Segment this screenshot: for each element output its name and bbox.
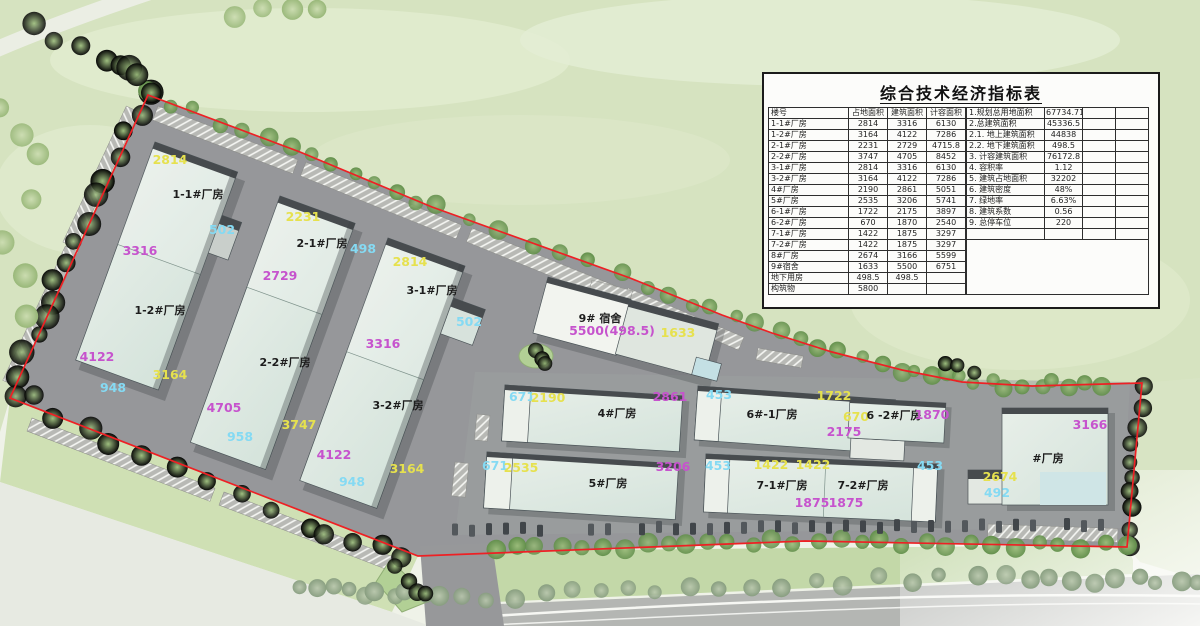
cell-empty xyxy=(1045,229,1083,240)
building-label-2-1: 2-1#厂房 xyxy=(296,236,347,250)
tree xyxy=(746,537,761,552)
tree xyxy=(829,342,846,359)
tree xyxy=(418,586,434,602)
tree xyxy=(27,143,49,165)
parked-car xyxy=(775,520,781,532)
tree xyxy=(478,593,494,609)
cell-value: 44838 xyxy=(1045,130,1083,141)
parked-car xyxy=(656,521,662,533)
tree xyxy=(1071,539,1090,558)
table-row: 2-1#厂房 2231 2729 4715.8 xyxy=(769,141,966,152)
parked-car xyxy=(724,522,730,534)
cell-building: 2-2#厂房 xyxy=(769,152,849,163)
table-row: 4. 容积率 1.12 xyxy=(967,163,1149,174)
building-label-1-2: 1-2#厂房 xyxy=(134,303,185,317)
tree xyxy=(661,536,677,552)
cell-empty xyxy=(1083,174,1116,185)
tree xyxy=(809,573,824,588)
tree xyxy=(141,83,162,104)
tree xyxy=(621,580,636,595)
parked-car xyxy=(741,522,747,534)
parked-car xyxy=(503,523,509,535)
parked-car xyxy=(826,522,832,534)
tree xyxy=(538,584,555,601)
tree xyxy=(342,582,357,597)
tree xyxy=(1148,576,1162,590)
cell-empty xyxy=(1116,185,1149,196)
tree xyxy=(1121,482,1139,500)
cell-empty xyxy=(1116,152,1149,163)
dim-annex: 453 xyxy=(705,458,731,473)
tree xyxy=(762,530,781,549)
parked-car xyxy=(588,524,594,536)
col-header: 建筑面积 xyxy=(888,108,927,119)
tree xyxy=(950,358,964,372)
dim-built: 2861 xyxy=(653,389,688,404)
tree xyxy=(1134,399,1152,417)
cell-footprint: 2535 xyxy=(849,196,888,207)
table-row-notes xyxy=(967,240,1149,295)
cell-plot-area: 5741 xyxy=(927,196,966,207)
cell-plot-area: 7286 xyxy=(927,174,966,185)
tree xyxy=(648,585,662,599)
parked-car xyxy=(792,522,798,534)
tree xyxy=(719,534,735,550)
tree xyxy=(967,366,981,380)
parked-car xyxy=(605,523,611,535)
tree xyxy=(1033,535,1047,549)
tree xyxy=(1105,569,1125,589)
tree xyxy=(125,63,148,86)
cell-value: 0.56 xyxy=(1045,207,1083,218)
cell-empty xyxy=(1116,196,1149,207)
parked-car xyxy=(911,521,917,533)
tree xyxy=(21,189,41,209)
parked-car xyxy=(452,524,458,536)
tree xyxy=(224,6,246,28)
dim-annex: 492 xyxy=(984,485,1010,500)
tree xyxy=(22,12,45,35)
table-row: 6-2#厂房 670 1870 2540 xyxy=(769,218,966,229)
tree xyxy=(1021,570,1040,589)
parked-car xyxy=(520,522,526,534)
parked-car xyxy=(877,522,883,534)
table-row: 5#厂房 2535 3206 5741 xyxy=(769,196,966,207)
cell-building: 9#宿舍 xyxy=(769,262,849,273)
tree xyxy=(365,582,384,601)
cell-empty xyxy=(1116,141,1149,152)
parked-car xyxy=(1064,518,1070,530)
dim-footprint: 2535 xyxy=(504,460,539,475)
tree xyxy=(13,263,38,288)
cell-plot-area: 6130 xyxy=(927,119,966,130)
building-label-3-1: 3-1#厂房 xyxy=(406,283,457,297)
cell-footprint: 3164 xyxy=(849,174,888,185)
tree xyxy=(326,578,342,594)
table-row: 2.2. 地下建筑面积 498.5 xyxy=(967,141,1149,152)
table-row: 1.规划总用地面积 67734.71 xyxy=(967,108,1149,119)
cell-indicator: 9. 总停车位 xyxy=(967,218,1045,229)
table-row: 3. 计容建筑面积 76172.8 xyxy=(967,152,1149,163)
cell-built-area: 2729 xyxy=(888,141,927,152)
parked-car xyxy=(1013,519,1019,531)
cell-built-area: 1870 xyxy=(888,218,927,229)
dim-built: 2175 xyxy=(827,424,862,439)
cell-indicator: 7. 绿地率 xyxy=(967,196,1045,207)
building-label-7-2: 7-2#厂房 xyxy=(837,478,888,492)
dim-built: 4705 xyxy=(207,400,242,415)
tree xyxy=(1092,377,1111,396)
cell-building: 1-1#厂房 xyxy=(769,119,849,130)
dim-footprint: 3164 xyxy=(153,367,188,382)
dim-footprint: 670 xyxy=(843,409,869,424)
cell-value: 67734.71 xyxy=(1045,108,1083,119)
parked-car xyxy=(758,520,764,532)
cell-footprint: 2674 xyxy=(849,251,888,262)
cell-building: 3-1#厂房 xyxy=(769,163,849,174)
parked-car xyxy=(860,520,866,532)
table-row: 构筑物 5800 xyxy=(769,284,966,295)
tree xyxy=(699,533,715,549)
parked-car xyxy=(1098,519,1104,531)
cell-footprint: 498.5 xyxy=(849,273,888,284)
table-grid: 楼号 占地面积 建筑面积 计容面积 1-1#厂房 2814 3316 6130 xyxy=(768,107,1154,295)
tree xyxy=(1132,569,1148,585)
cell-empty xyxy=(967,229,1045,240)
tree xyxy=(711,581,727,597)
table-row: 5. 建筑占地面积 32202 xyxy=(967,174,1149,185)
cell-value: 1.12 xyxy=(1045,163,1083,174)
cell-building: 8#厂房 xyxy=(769,251,849,262)
tree xyxy=(57,254,76,273)
cell-plot-area: 3297 xyxy=(927,240,966,251)
parked-car xyxy=(486,523,492,535)
parked-car xyxy=(843,520,849,532)
cell-value: 498.5 xyxy=(1045,141,1083,152)
tree xyxy=(919,533,935,549)
cell-indicator: 6. 建筑密度 xyxy=(967,185,1045,196)
cell-plot-area: 8452 xyxy=(927,152,966,163)
dim-footprint: 3747 xyxy=(282,417,317,432)
tree xyxy=(453,588,470,605)
tree xyxy=(964,535,979,550)
dim-built: 4122 xyxy=(80,349,115,364)
cell-empty xyxy=(1083,196,1116,207)
cell-built-area: 3316 xyxy=(888,119,927,130)
table-row: 8#厂房 2674 3166 5599 xyxy=(769,251,966,262)
cell-empty xyxy=(1116,229,1149,240)
cell-building: 2-1#厂房 xyxy=(769,141,849,152)
cell-empty xyxy=(1083,130,1116,141)
tree xyxy=(6,365,29,388)
tree xyxy=(314,524,334,544)
cell-built-area: 4122 xyxy=(888,174,927,185)
cell-empty xyxy=(1083,163,1116,174)
parked-car xyxy=(928,520,934,532)
table-row: 9. 总停车位 220 xyxy=(967,218,1149,229)
tree xyxy=(1077,375,1092,390)
building-label-5: 5#厂房 xyxy=(589,476,628,490)
parked-car xyxy=(639,523,645,535)
cell-building: 6-1#厂房 xyxy=(769,207,849,218)
cell-footprint: 1422 xyxy=(849,240,888,251)
cell-built-area: 2861 xyxy=(888,185,927,196)
table-row: 1-2#厂房 3164 4122 7286 xyxy=(769,130,966,141)
cell-built-area: 5500 xyxy=(888,262,927,273)
cell-built-area: 3206 xyxy=(888,196,927,207)
parked-car xyxy=(996,521,1002,533)
table-row: 2.总建筑面积 45336.5 xyxy=(967,119,1149,130)
tree xyxy=(387,558,402,573)
parked-car xyxy=(979,519,985,531)
parked-car xyxy=(690,523,696,535)
dim-footprint: 2814 xyxy=(393,254,428,269)
dim-footprint: 2814 xyxy=(153,152,188,167)
dim-built: 3166 xyxy=(1073,417,1108,432)
building-label-4: 4#厂房 xyxy=(598,406,637,420)
table-row: 1-1#厂房 2814 3316 6130 xyxy=(769,119,966,130)
cell-indicator: 2.2. 地下建筑面积 xyxy=(967,141,1045,152)
parking-strip xyxy=(474,414,490,441)
cell-plot-area: 3297 xyxy=(927,229,966,240)
dim-annex: 498 xyxy=(350,241,376,256)
building-label-8: #厂房 xyxy=(1032,451,1063,465)
cell-plot-area: 4715.8 xyxy=(927,141,966,152)
tree xyxy=(505,589,525,609)
dim-built: 3316 xyxy=(366,336,401,351)
tree xyxy=(45,32,63,50)
tree xyxy=(263,502,280,519)
cell-built-area: 2175 xyxy=(888,207,927,218)
dim-annex: 958 xyxy=(227,429,253,444)
tree xyxy=(1015,379,1030,394)
parked-car xyxy=(673,523,679,535)
dim-annex: 453 xyxy=(706,387,732,402)
tree xyxy=(968,566,988,586)
cell-footprint: 2814 xyxy=(849,119,888,130)
dim-annex: 948 xyxy=(339,474,365,489)
tree xyxy=(1135,377,1153,395)
site-plan-screenshot: { "table": { "title": "综合技术经济指标表", "left… xyxy=(0,0,1200,626)
table-row: 6-1#厂房 1722 2175 3897 xyxy=(769,207,966,218)
tree xyxy=(676,534,696,554)
dim-footprint: 1633 xyxy=(661,325,696,340)
cell-plot-area: 6130 xyxy=(927,163,966,174)
tree xyxy=(1060,379,1078,397)
tree xyxy=(594,538,612,556)
col-header: 占地面积 xyxy=(849,108,888,119)
building-label-7-1: 7-1#厂房 xyxy=(756,478,807,492)
cell-empty xyxy=(1083,119,1116,130)
cell-building: 7-2#厂房 xyxy=(769,240,849,251)
table-row: 3-1#厂房 2814 3316 6130 xyxy=(769,163,966,174)
tree xyxy=(743,579,760,596)
cell-footprint: 1722 xyxy=(849,207,888,218)
dim-annex: 502 xyxy=(456,314,482,329)
cell-built-area: 3316 xyxy=(888,163,927,174)
dim-footprint: 1722 xyxy=(817,388,852,403)
parked-car xyxy=(894,519,900,531)
dim-annex: 502 xyxy=(209,222,235,237)
building-label-2-2: 2-2#厂房 xyxy=(259,355,310,369)
tree xyxy=(893,538,909,554)
cell-indicator: 4. 容积率 xyxy=(967,163,1045,174)
dim-footprint: 2190 xyxy=(531,390,566,405)
dim-built: 1870 xyxy=(915,407,950,422)
table-row: 8. 建筑系数 0.56 xyxy=(967,207,1149,218)
table-row: 9#宿舍 1633 5500 6751 xyxy=(769,262,966,273)
cell-indicator: 1.规划总用地面积 xyxy=(967,108,1045,119)
cell-empty xyxy=(1083,141,1116,152)
table-row: 7-2#厂房 1422 1875 3297 xyxy=(769,240,966,251)
table-row: 2-2#厂房 3747 4705 8452 xyxy=(769,152,966,163)
parked-car xyxy=(469,525,475,537)
dim-annex: 453 xyxy=(917,458,943,473)
cell-built-area: 3166 xyxy=(888,251,927,262)
table-row: 7. 绿地率 6.63% xyxy=(967,196,1149,207)
tree xyxy=(1040,569,1058,587)
cell-footprint: 2231 xyxy=(849,141,888,152)
cell-empty xyxy=(1116,207,1149,218)
table-row: 6. 建筑密度 48% xyxy=(967,185,1149,196)
cell-indicator: 5. 建筑占地面积 xyxy=(967,174,1045,185)
dim-footprint: 1422 xyxy=(796,457,831,472)
tree xyxy=(1050,538,1064,552)
cell-footprint: 1633 xyxy=(849,262,888,273)
tree xyxy=(487,540,507,560)
cell-footprint: 2190 xyxy=(849,185,888,196)
cell-built-area: 4122 xyxy=(888,130,927,141)
parked-car xyxy=(1030,520,1036,532)
cell-building: 3-2#厂房 xyxy=(769,174,849,185)
tree xyxy=(538,356,553,371)
cell-plot-area: 7286 xyxy=(927,130,966,141)
dim-built: 1875 xyxy=(829,495,864,510)
dim-footprint: 3164 xyxy=(390,461,425,476)
tree xyxy=(574,540,589,555)
parked-car xyxy=(945,521,951,533)
parked-car xyxy=(707,523,713,535)
dim-footprint: 2231 xyxy=(286,209,321,224)
cell-empty xyxy=(1116,130,1149,141)
dim-footprint: 2674 xyxy=(983,469,1018,484)
buildings-table: 楼号 占地面积 建筑面积 计容面积 1-1#厂房 2814 3316 6130 xyxy=(768,107,966,295)
cell-building: 1-2#厂房 xyxy=(769,130,849,141)
notes-cell xyxy=(967,240,1149,295)
tree xyxy=(114,121,133,140)
cell-building: 构筑物 xyxy=(769,284,849,295)
cell-building: 5#厂房 xyxy=(769,196,849,207)
cell-built-area: 498.5 xyxy=(888,273,927,284)
tree xyxy=(71,36,90,55)
building-label-1-1: 1-1#厂房 xyxy=(172,187,223,201)
cell-indicator: 2.总建筑面积 xyxy=(967,119,1045,130)
cell-plot-area xyxy=(927,284,966,295)
tree xyxy=(638,533,658,553)
cell-building: 地下用房 xyxy=(769,273,849,284)
dim-built: 3316 xyxy=(123,243,158,258)
cell-empty xyxy=(1083,229,1116,240)
cell-empty xyxy=(1116,174,1149,185)
cell-empty xyxy=(1083,207,1116,218)
tree xyxy=(1062,571,1082,591)
parked-car xyxy=(537,525,543,537)
table-title: 综合技术经济指标表 xyxy=(768,76,1154,107)
buildings-table-header: 楼号 占地面积 建筑面积 计容面积 xyxy=(769,108,966,119)
col-header: 楼号 xyxy=(769,108,849,119)
cell-indicator: 8. 建筑系数 xyxy=(967,207,1045,218)
table-row: 3-2#厂房 3164 4122 7286 xyxy=(769,174,966,185)
dim-footprint: 1422 xyxy=(754,457,789,472)
cell-footprint: 2814 xyxy=(849,163,888,174)
cell-footprint: 3747 xyxy=(849,152,888,163)
parked-car xyxy=(1081,520,1087,532)
parked-car xyxy=(962,520,968,532)
indicator-table-panel: 综合技术经济指标表 楼号 占地面积 建筑面积 计容面积 1-1#厂房 2814 … xyxy=(762,72,1160,309)
tree xyxy=(308,0,327,18)
tree xyxy=(615,539,635,559)
cell-empty xyxy=(1116,163,1149,174)
tree xyxy=(1006,538,1026,558)
cell-plot-area xyxy=(927,273,966,284)
tree xyxy=(995,379,1013,397)
table-row: 7-1#厂房 1422 1875 3297 xyxy=(769,229,966,240)
cell-empty xyxy=(1116,218,1149,229)
cell-built-area: 1875 xyxy=(888,229,927,240)
tree xyxy=(308,579,326,597)
cell-value: 76172.8 xyxy=(1045,152,1083,163)
tree xyxy=(84,183,108,207)
cell-empty xyxy=(1083,152,1116,163)
tree xyxy=(1085,574,1104,593)
parked-car xyxy=(809,520,815,532)
tree xyxy=(936,537,955,556)
tree xyxy=(870,567,887,584)
dim-built: 2729 xyxy=(263,268,298,283)
cell-empty xyxy=(1116,119,1149,130)
table-row: 地下用房 498.5 498.5 xyxy=(769,273,966,284)
cell-plot-area: 3897 xyxy=(927,207,966,218)
tree xyxy=(785,536,801,552)
dim-built: 1875 xyxy=(795,495,830,510)
building-6-2-annex xyxy=(850,438,905,461)
cell-building: 7-1#厂房 xyxy=(769,229,849,240)
building-label-3-2: 3-2#厂房 xyxy=(372,398,423,412)
tree xyxy=(293,580,307,594)
cell-footprint: 670 xyxy=(849,218,888,229)
tree xyxy=(772,579,791,598)
cell-empty xyxy=(1083,108,1116,119)
cell-footprint: 5800 xyxy=(849,284,888,295)
tree xyxy=(1172,572,1192,592)
cell-empty xyxy=(1083,185,1116,196)
tree xyxy=(681,577,700,596)
cell-built-area xyxy=(888,284,927,295)
cell-value: 6.63% xyxy=(1045,196,1083,207)
cell-building: 4#厂房 xyxy=(769,185,849,196)
summary-table: 1.规划总用地面积 67734.71 2.总建筑面积 45336.5 2.1 xyxy=(966,107,1149,295)
table-row-empty xyxy=(967,229,1149,240)
tree xyxy=(554,537,572,555)
cell-built-area: 4705 xyxy=(888,152,927,163)
cell-empty xyxy=(1083,218,1116,229)
cell-empty xyxy=(1116,108,1149,119)
cell-plot-area: 5051 xyxy=(927,185,966,196)
cell-built-area: 1875 xyxy=(888,240,927,251)
cell-value: 48% xyxy=(1045,185,1083,196)
cell-footprint: 3164 xyxy=(849,130,888,141)
tree xyxy=(996,565,1015,584)
